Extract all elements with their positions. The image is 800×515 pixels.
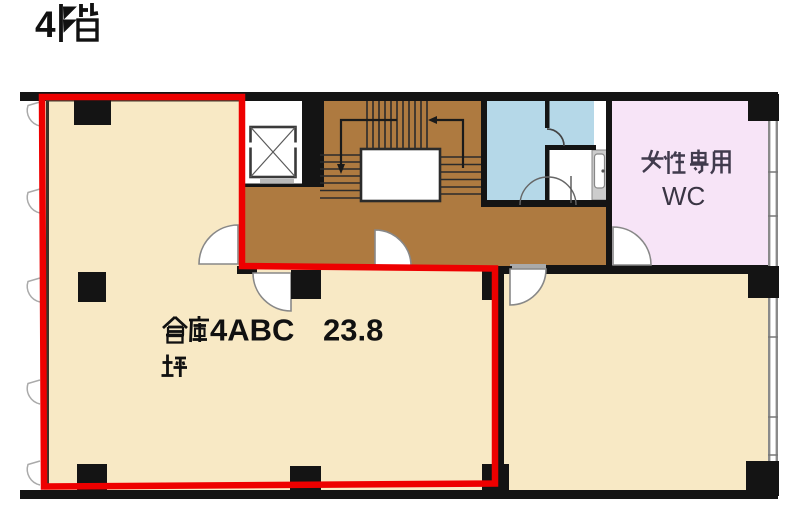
svg-text:4: 4 [35,4,56,45]
svg-text:23.8: 23.8 [323,313,383,348]
svg-text:4ABC: 4ABC [210,313,294,348]
svg-text:WC: WC [662,181,705,211]
